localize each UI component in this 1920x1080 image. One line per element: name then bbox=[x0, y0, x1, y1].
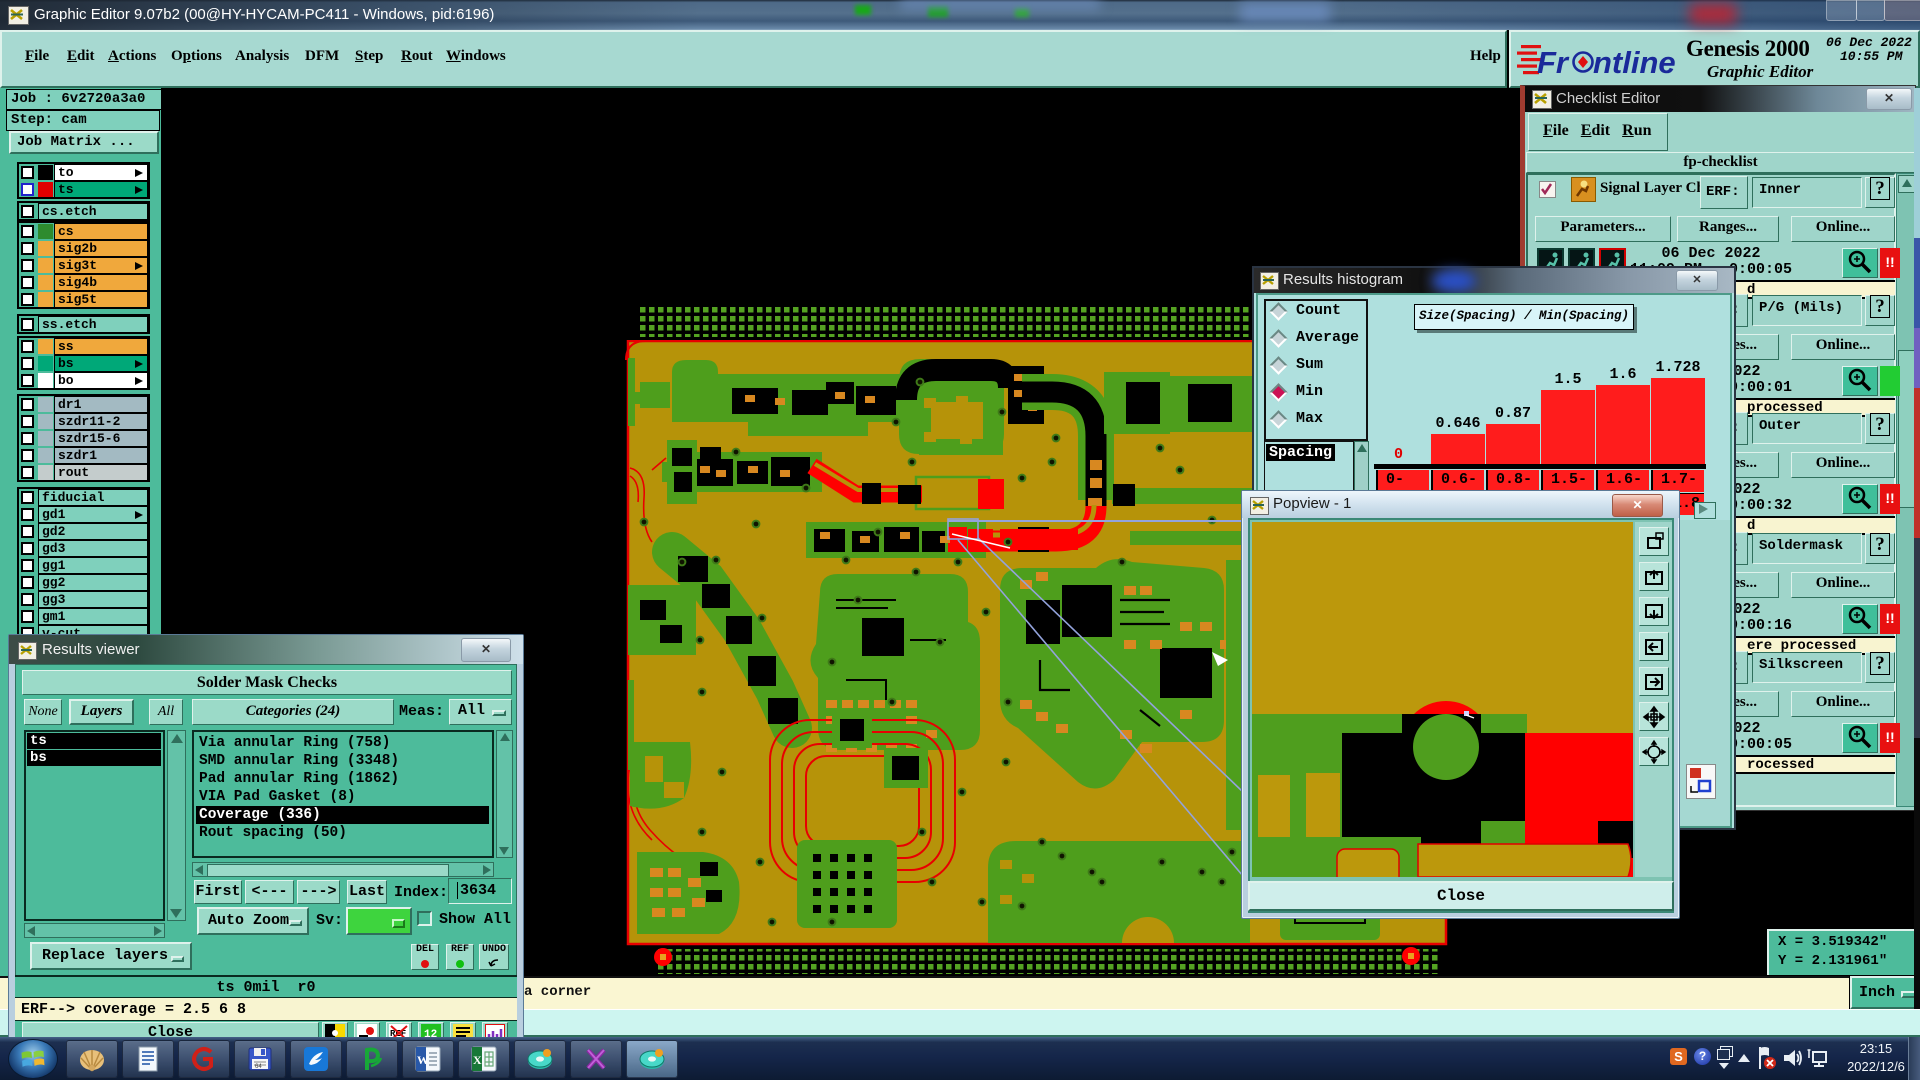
svg-text:W: W bbox=[417, 1053, 429, 1067]
svg-text:64: 64 bbox=[255, 1064, 262, 1070]
svg-text:X: X bbox=[473, 1053, 482, 1067]
